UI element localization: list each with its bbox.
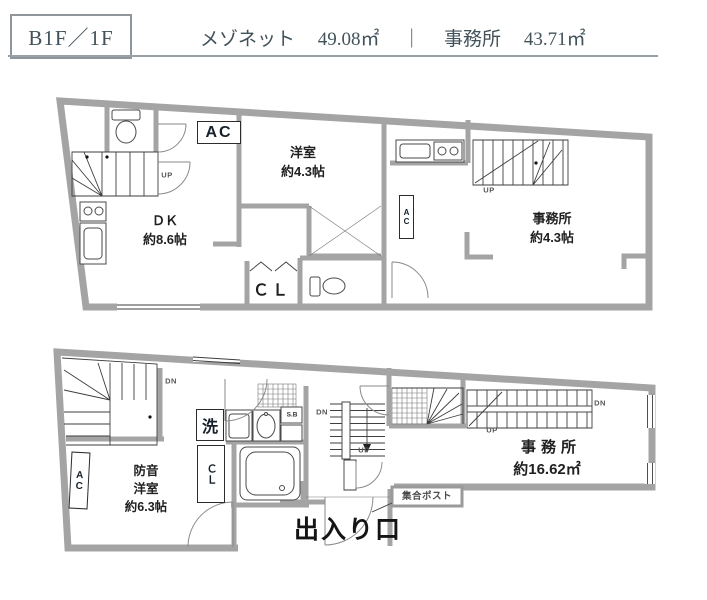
center-stairs-up-label: UP [358,446,369,457]
floorplan-page: B1F／1F メゾネット 49.08㎡ ｜ 事務所 43.71㎡ [0,0,707,600]
soundproof-room-label: 防音 洋室 約6.3帖 [125,462,167,516]
lower-office-stairs [467,390,592,428]
toilet-fixture-upper-left [112,110,140,143]
office-stairs-up-label: UP [483,186,494,197]
ac-label-box-upper: AC [197,121,241,144]
washer-label-box: 洗 [196,409,224,441]
dk-room-label: ＤＫ 約8.6帖 [143,212,187,250]
office-room-name-lower: 事務所 [521,437,581,459]
upper-perimeter-wall [60,101,649,307]
bathtub-fixture [240,447,300,500]
upper-window [117,303,200,311]
dk-kitchen-fixture [80,202,106,264]
lower-office-stairs-up-label: UP [486,426,497,437]
toilet-fixture-upper-middle [310,277,345,296]
washbasin-fixture [253,410,280,441]
mailbox-label: 集合ポスト [402,490,452,504]
lower-stairs-dn-label: DN [165,377,177,388]
closet-folding-door [250,262,297,271]
lower-office-stairs-dn-label: DN [594,399,606,410]
floorplan-drawing [0,0,707,600]
grating-hatch-right [392,388,463,424]
void-cross [309,206,381,256]
lower-left-stairs [62,358,157,445]
closet-label-box-lower: ＣＬ [197,445,225,503]
ac-label-box-lower: AC [69,452,91,510]
western-room-label: 洋室 約4.3帖 [281,144,325,182]
shoe-box-label: S.B [287,410,298,419]
center-stairs-dn-label: DN [316,408,328,419]
office-room-label-upper: 事務所 約4.3帖 [530,210,574,248]
entrance-label: 出入り口 [294,512,402,548]
ac-label-box-office: AC [399,195,414,239]
closet-label-upper: ＣＬ [253,279,291,302]
upper-left-stairs [72,152,158,196]
office-kitchenette-fixture [396,140,464,162]
upper-office-stairs [473,140,568,185]
upper-floor-plan [60,101,649,311]
office-room-area-lower: 約16.62㎡ [513,459,581,481]
upper-stairs-up-label: UP [161,171,172,182]
